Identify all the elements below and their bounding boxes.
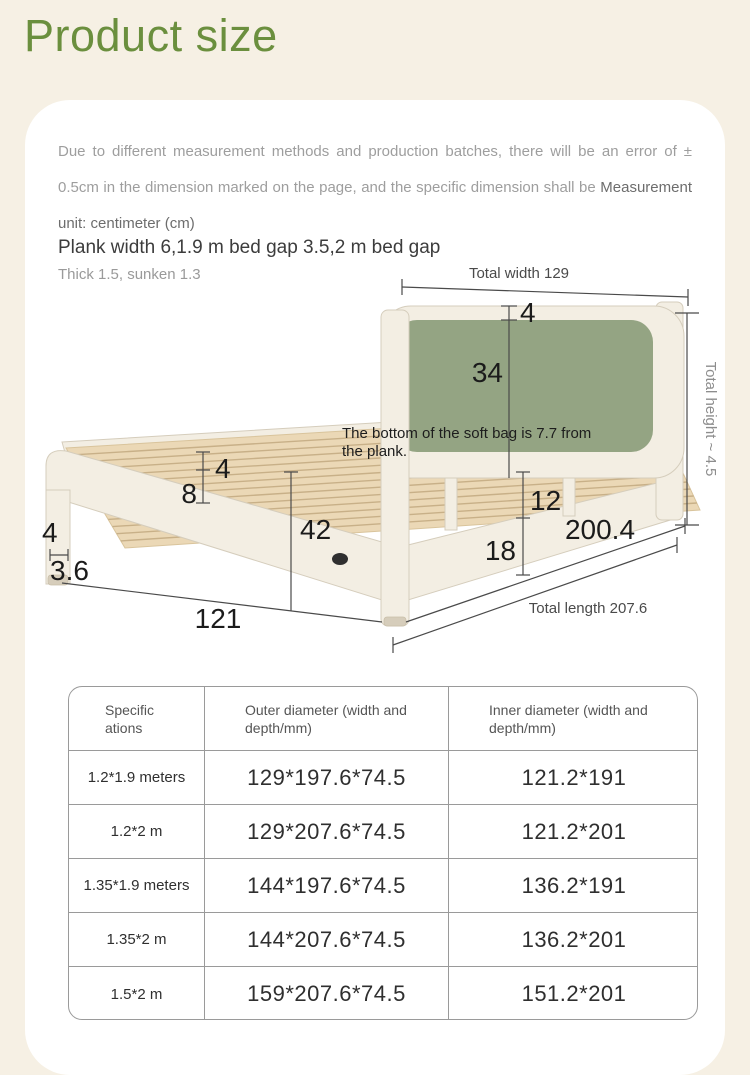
bed-illustration (46, 302, 700, 626)
table-header-outer: Outer diameter (width and depth/mm) (205, 687, 449, 751)
soft-bag-note-line1: The bottom of the soft bag is 7.7 from (342, 425, 591, 442)
spec-cell: 1.5*2 m (69, 967, 205, 1020)
soft-bag-note-line2: the plank. (342, 443, 407, 460)
outer-cell: 129*197.6*74.5 (205, 751, 449, 805)
size-table: Specific ations Outer diameter (width an… (68, 686, 698, 1020)
spec-cell: 1.2*2 m (69, 805, 205, 859)
outer-cell: 144*197.6*74.5 (205, 859, 449, 913)
dim-footboard-width-label: 121 (195, 603, 242, 634)
inner-cell: 121.2*201 (449, 805, 698, 859)
table-header-spec: Specific ations (69, 687, 205, 751)
dim-inner-length-label: 200.4 (565, 514, 635, 545)
inner-cell: 121.2*191 (449, 751, 698, 805)
inner-cell: 136.2*191 (449, 859, 698, 913)
outer-cell: 144*207.6*74.5 (205, 913, 449, 967)
dim-slat-thickness-label: 4 (215, 453, 231, 484)
spec-cell: 1.2*1.9 meters (69, 751, 205, 805)
outer-cell: 129*207.6*74.5 (205, 805, 449, 859)
dim-rail-bottom-label: 18 (485, 535, 516, 566)
bed-diagram: Total width 129 4 34 The bottom of the s… (0, 250, 750, 670)
headboard (381, 306, 684, 478)
dim-rail-top-label: 12 (530, 485, 561, 516)
table-header-inner: Inner diameter (width and depth/mm) (449, 687, 698, 751)
inner-cell: 151.2*201 (449, 967, 698, 1020)
dim-total-length-label: Total length 207.6 (529, 600, 647, 617)
dim-frame-height-label: 42 (300, 514, 331, 545)
dim-total-height-label: Total height ~ 4.5 (702, 362, 719, 477)
caster (332, 553, 348, 565)
dim-leg-width-label: 4 (42, 517, 58, 548)
dim-panel-height-label: 34 (472, 357, 503, 388)
outer-cell: 159*207.6*74.5 (205, 967, 449, 1020)
page-title: Product size (24, 10, 278, 62)
dim-slat-gap-label: 8 (181, 478, 197, 509)
dim-headboard-top-gap-label: 4 (520, 297, 536, 328)
headboard-front-post (381, 310, 409, 626)
inner-cell: 136.2*201 (449, 913, 698, 967)
dim-total-width-label: Total width 129 (469, 265, 569, 282)
spec-cell: 1.35*1.9 meters (69, 859, 205, 913)
dim-leg-glide-label: 3.6 (50, 555, 89, 586)
disclaimer-text: Due to different measurement methods and… (58, 134, 692, 242)
disclaimer-body: Due to different measurement methods and… (58, 143, 692, 196)
spec-cell: 1.35*2 m (69, 913, 205, 967)
